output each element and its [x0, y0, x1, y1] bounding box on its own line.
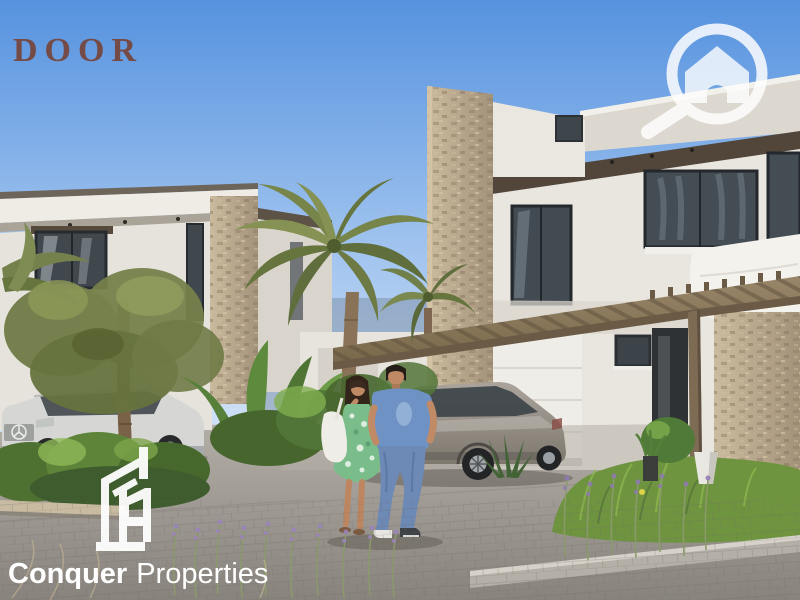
stone-side-wall: [714, 312, 800, 474]
stone-chimney: [427, 86, 493, 404]
upper-window-center: [645, 171, 757, 254]
brand-name-bold: Conquer: [8, 558, 127, 590]
tower-window: [556, 116, 582, 141]
conquer-logo-icon: [85, 445, 165, 560]
brand-name-light: Properties: [136, 558, 268, 590]
entrance-door: [652, 328, 688, 432]
ground-window: [613, 336, 653, 370]
magnifier-house-icon: [600, 0, 800, 180]
door-watermark: DOOR: [13, 34, 143, 68]
photo-canvas: DOOR ConquerProperties: [0, 0, 800, 600]
conquer-properties-watermark: ConquerProperties: [8, 558, 268, 591]
upper-window-left: [512, 206, 571, 304]
